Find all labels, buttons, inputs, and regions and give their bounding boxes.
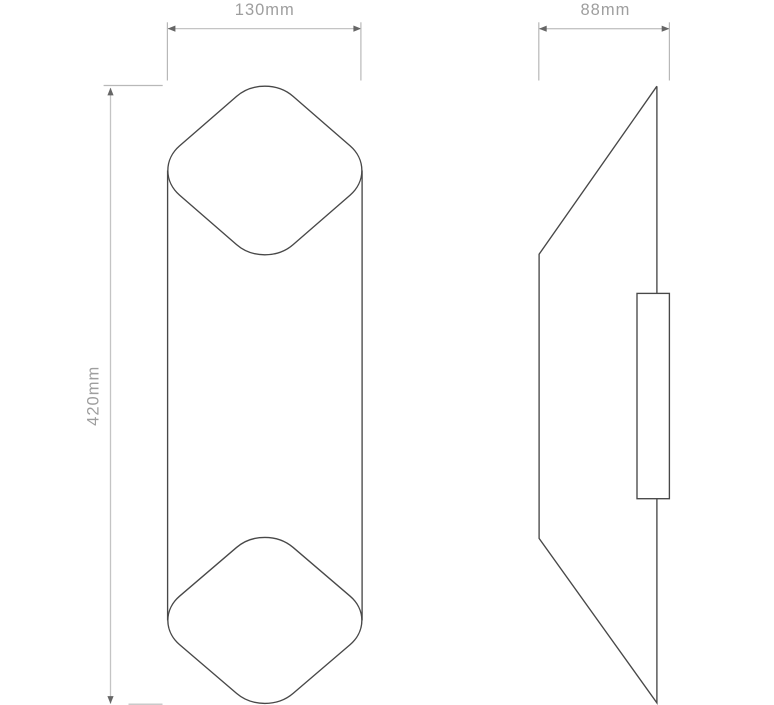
svg-text:130mm: 130mm <box>235 1 295 19</box>
svg-text:420mm: 420mm <box>84 366 102 426</box>
svg-text:88mm: 88mm <box>580 1 630 19</box>
